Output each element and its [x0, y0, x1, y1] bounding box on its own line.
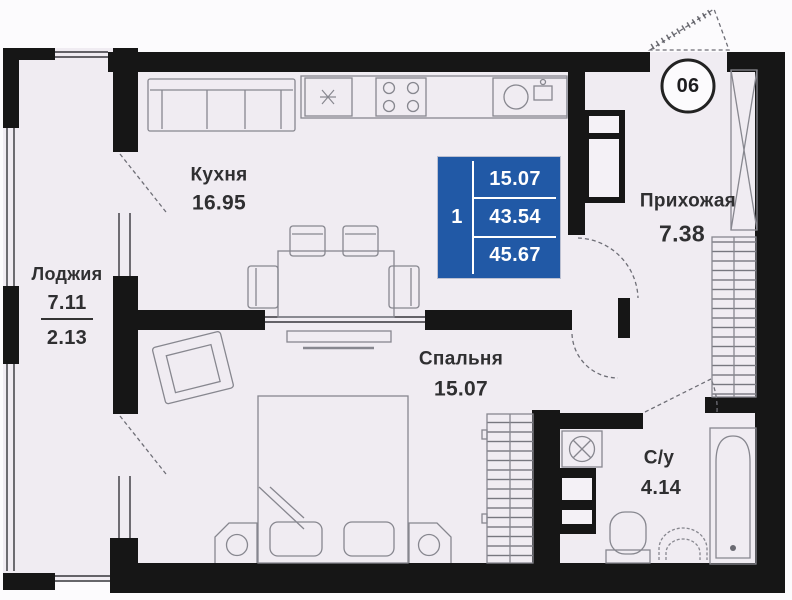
bedroom-label: Спальня — [419, 350, 503, 369]
hallway-area: 7.38 — [659, 223, 705, 246]
total-area-value: 45.67 — [474, 238, 556, 274]
hallway-label: Прихожая — [640, 192, 736, 211]
drain — [730, 545, 736, 551]
bathroom-area: 4.14 — [641, 478, 681, 498]
loggia-area-full: 7.11 — [47, 293, 86, 313]
entrance-door-flag — [650, 9, 729, 50]
wardrobe — [482, 414, 533, 563]
floor-plan: 06 Кухня 16.95 Лоджия 7.11 2.13 Спальня … — [0, 0, 792, 600]
loggia-area-reduced: 2.13 — [47, 328, 87, 348]
area-summary-table: 1 15.07 43.54 45.67 — [438, 157, 560, 278]
kitchen-area: 16.95 — [192, 193, 246, 214]
kitchen-label: Кухня — [190, 166, 247, 185]
unit-badge: 06 — [677, 76, 700, 96]
loggia-fraction-line — [41, 318, 93, 320]
bedroom-area: 15.07 — [434, 379, 488, 400]
rooms-count: 1 — [442, 161, 472, 274]
living-area-value: 15.07 — [474, 161, 556, 197]
area-value: 43.54 — [474, 199, 556, 235]
bathroom-label: С/у — [644, 449, 674, 468]
floor-plan-drawing — [0, 0, 792, 600]
coat-rack — [712, 237, 756, 397]
loggia-label: Лоджия — [32, 265, 103, 283]
